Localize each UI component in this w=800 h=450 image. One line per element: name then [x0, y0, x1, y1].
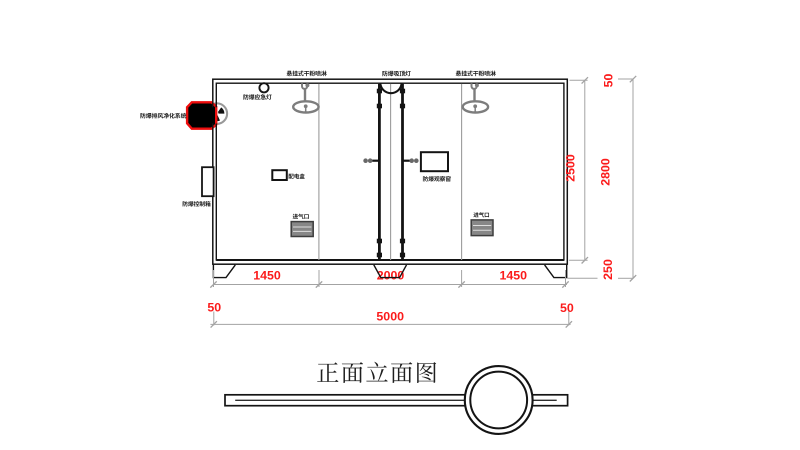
svg-text:50: 50: [602, 74, 616, 88]
svg-text:2500: 2500: [564, 154, 578, 182]
svg-text:2800: 2800: [598, 158, 612, 186]
svg-text:250: 250: [601, 259, 615, 280]
svg-text:50: 50: [207, 301, 221, 315]
svg-text:1450: 1450: [500, 268, 528, 282]
svg-text:50: 50: [560, 301, 574, 315]
svg-text:5000: 5000: [376, 309, 404, 323]
svg-text:1450: 1450: [253, 268, 281, 282]
